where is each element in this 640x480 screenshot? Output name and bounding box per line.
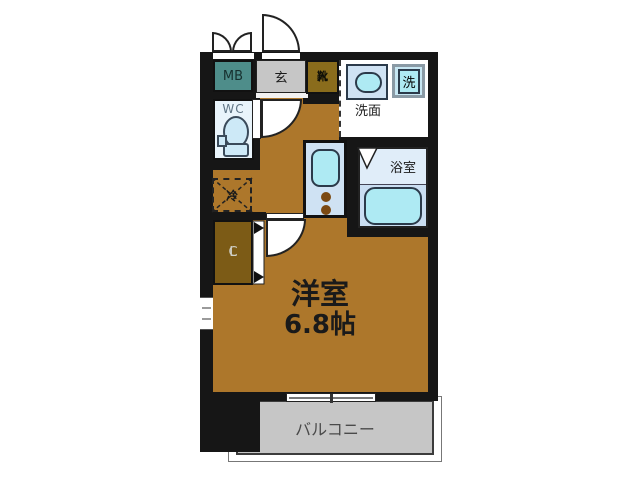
kitchen-sink-icon (311, 149, 340, 187)
meter-box-label: MB (223, 69, 243, 84)
washing-machine-label: 洗 (398, 69, 420, 94)
pillar (200, 392, 260, 452)
main-room-label: 洋室 (240, 277, 400, 307)
balcony: バルコニー (236, 400, 434, 455)
wall-under-wc (200, 160, 260, 170)
wall-bath-bottom (347, 228, 428, 237)
mb-door-opening (213, 53, 254, 59)
washing-machine: 洗 (392, 64, 425, 98)
entrance-opening (262, 53, 300, 59)
closet-label-2: L (229, 245, 236, 261)
shoe-cabinet-label-2: 入 (317, 71, 328, 83)
stove-burner-icon (321, 205, 331, 215)
entrance-door-swing-icon (262, 14, 300, 52)
wall-left (200, 52, 213, 400)
bathroom-label: 浴室 (378, 157, 428, 175)
wc-room: WC (213, 99, 254, 160)
mb-door-swing-left-icon (212, 32, 232, 52)
entry-step-edge (256, 93, 308, 98)
balcony-sliding-window (286, 393, 376, 402)
wc-door-leaf (252, 99, 261, 139)
entry-label: 玄 (274, 67, 287, 86)
meter-box: MB (213, 60, 253, 92)
wall-room-door (200, 212, 266, 220)
shoe-cabinet: 靴 入 (306, 60, 339, 94)
vanity-counter (346, 64, 388, 100)
floor-plan: バルコニー MB 玄 靴 入 洗 洗面 WC (0, 0, 640, 480)
sink-icon (355, 72, 382, 93)
mb-door-swing-right-icon (232, 32, 252, 52)
wall-right (428, 52, 438, 400)
closet: C L (213, 220, 253, 285)
sliding-window-lock (330, 394, 333, 403)
kitchen-counter (303, 140, 347, 218)
toilet-icon (217, 114, 253, 160)
entry-area: 玄 (256, 60, 306, 93)
bathroom: 浴室 (358, 147, 428, 228)
refrigerator-label: 冷 (226, 187, 238, 204)
refrigerator-space: 冷 (212, 178, 252, 212)
wall-under-shoebox (303, 94, 342, 104)
bathroom-folding-door-icon (357, 147, 379, 171)
bathtub-icon (364, 187, 422, 225)
stove-burner-icon (321, 192, 331, 202)
washroom: 洗 洗面 (345, 60, 428, 137)
main-room-size-label: 6.8帖 (240, 308, 400, 336)
closet-folding-door-icon (253, 221, 265, 284)
balcony-label: バルコニー (295, 416, 375, 440)
washroom-label: 洗面 (345, 100, 391, 118)
side-window (200, 297, 213, 330)
